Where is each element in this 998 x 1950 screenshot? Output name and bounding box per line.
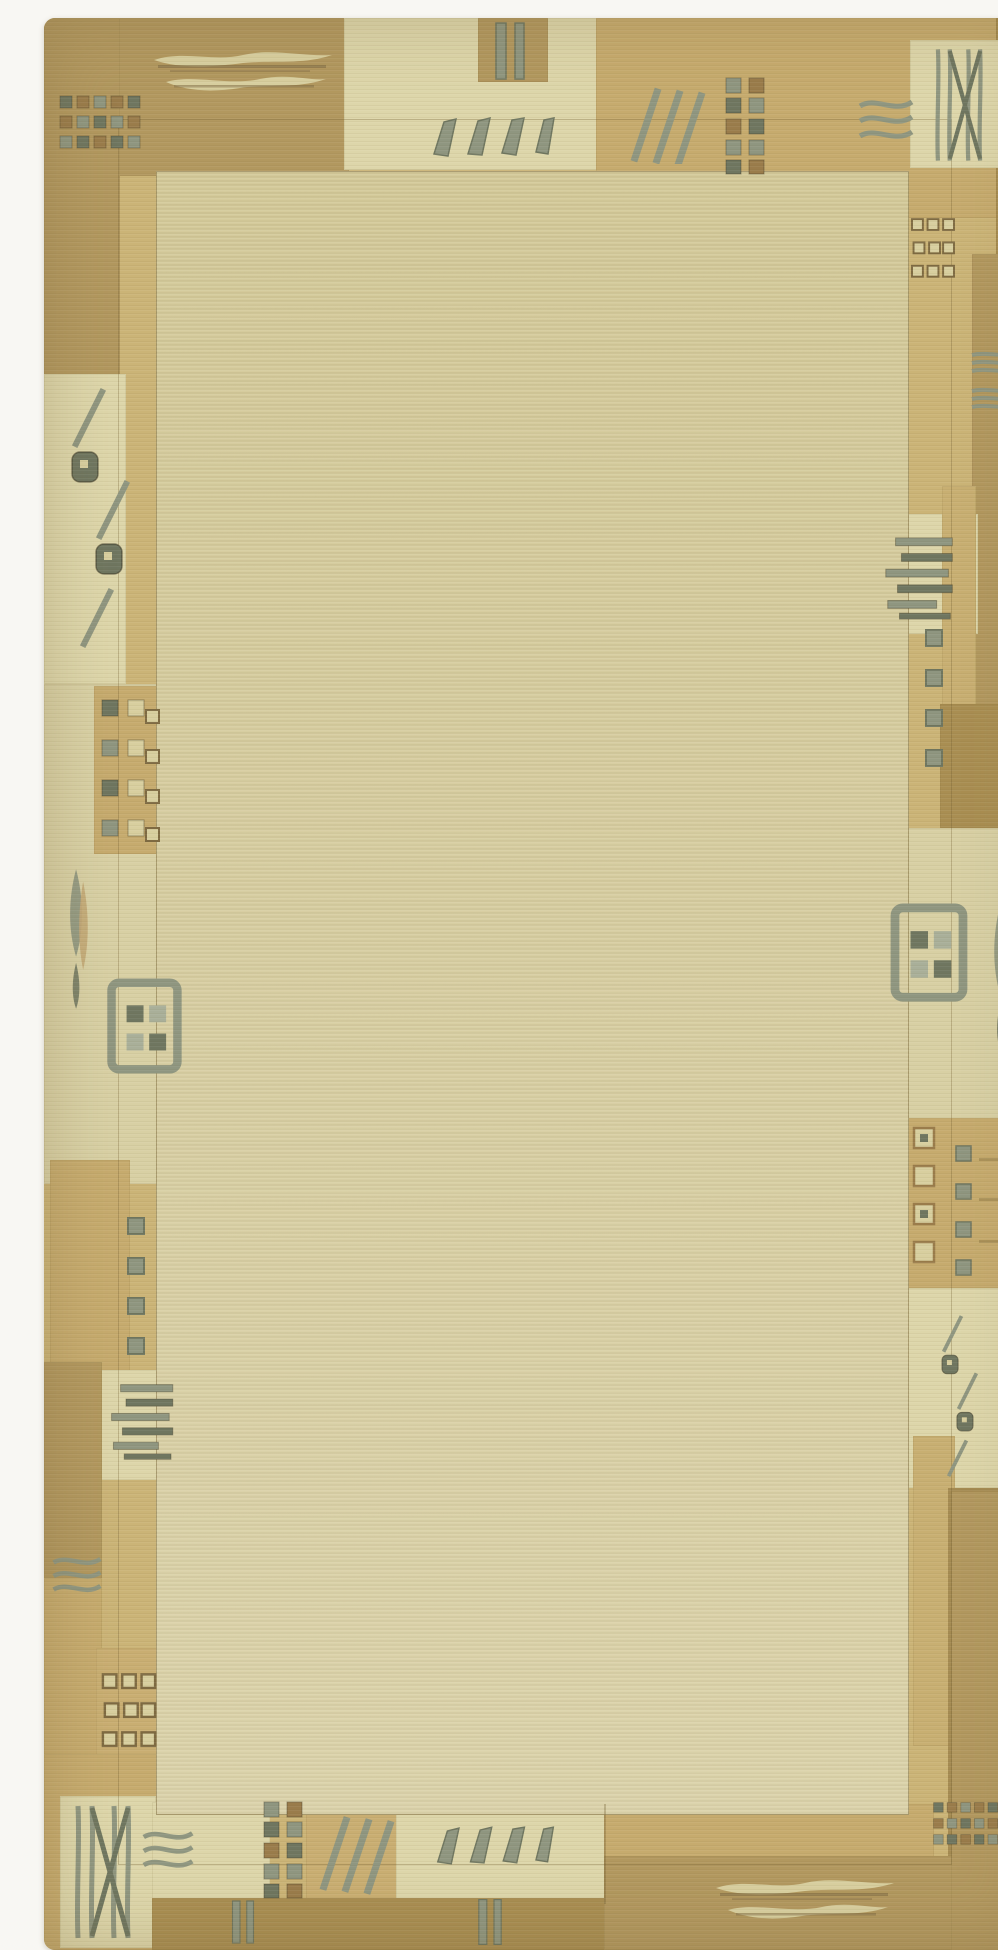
- slash-blob-right: [926, 1314, 994, 1482]
- outline-squares-2col-right: [910, 1124, 985, 1282]
- slash-blob-left: [56, 386, 146, 656]
- patch-left-dark-column: [44, 18, 120, 388]
- diagonal-lines-top: [623, 84, 708, 164]
- parallelogram-row-bottom: [432, 1820, 562, 1870]
- window-motif-left: [104, 974, 184, 1079]
- fish-motif-top-left: [148, 44, 338, 99]
- layered-stripes-right: [968, 346, 998, 418]
- piano-bars-left: [108, 1374, 180, 1469]
- dotted-columns-bottom: [262, 1800, 307, 1900]
- lattice-xbars-top-right: [924, 46, 994, 164]
- patch-left-tan-strip: [50, 1160, 130, 1382]
- piano-bars-right: [880, 534, 962, 622]
- rug-field: [156, 171, 909, 1815]
- diagonal-lines-bottom: [312, 1810, 397, 1895]
- leaf-pod-left: [54, 864, 99, 1014]
- outline-squares-right-top: [904, 216, 962, 286]
- wavy-lines-top-right: [856, 94, 916, 149]
- fish-motif-bottom-right: [710, 1872, 900, 1927]
- squares-rows-left: [96, 694, 162, 849]
- patch-right-dark-block: [940, 704, 998, 828]
- lattice-xbars-bottom-left: [68, 1802, 138, 1942]
- dotted-columns-top: [724, 76, 769, 176]
- seam-line: [604, 1804, 606, 1904]
- squares-column-right: [922, 626, 948, 781]
- double-bars-bottom-1: [228, 1894, 258, 1950]
- wavy-lines-bottom-left: [140, 1824, 196, 1879]
- rug-photo-page: { "meta": { "type": "photograph", "subje…: [0, 0, 998, 1946]
- outline-squares-left: [100, 1670, 158, 1758]
- window-motif-right: [886, 902, 971, 1004]
- rug: Cream wool rug with a patchwork border o…: [44, 18, 998, 1950]
- patch-bottom-dark-strip: [152, 1898, 612, 1950]
- double-bars-top: [490, 20, 530, 82]
- squares-grid-top-left: [58, 94, 148, 154]
- wavy-lines-left: [50, 1544, 104, 1609]
- double-bars-bottom-2: [474, 1894, 506, 1950]
- parallelogram-row-top: [428, 114, 563, 159]
- leaf-pod-right: [980, 890, 998, 1065]
- squares-grid-bottom-right: [932, 1792, 998, 1858]
- patch-bottom-right-dark-corner: [948, 1488, 998, 1950]
- squares-column-left: [124, 1214, 150, 1369]
